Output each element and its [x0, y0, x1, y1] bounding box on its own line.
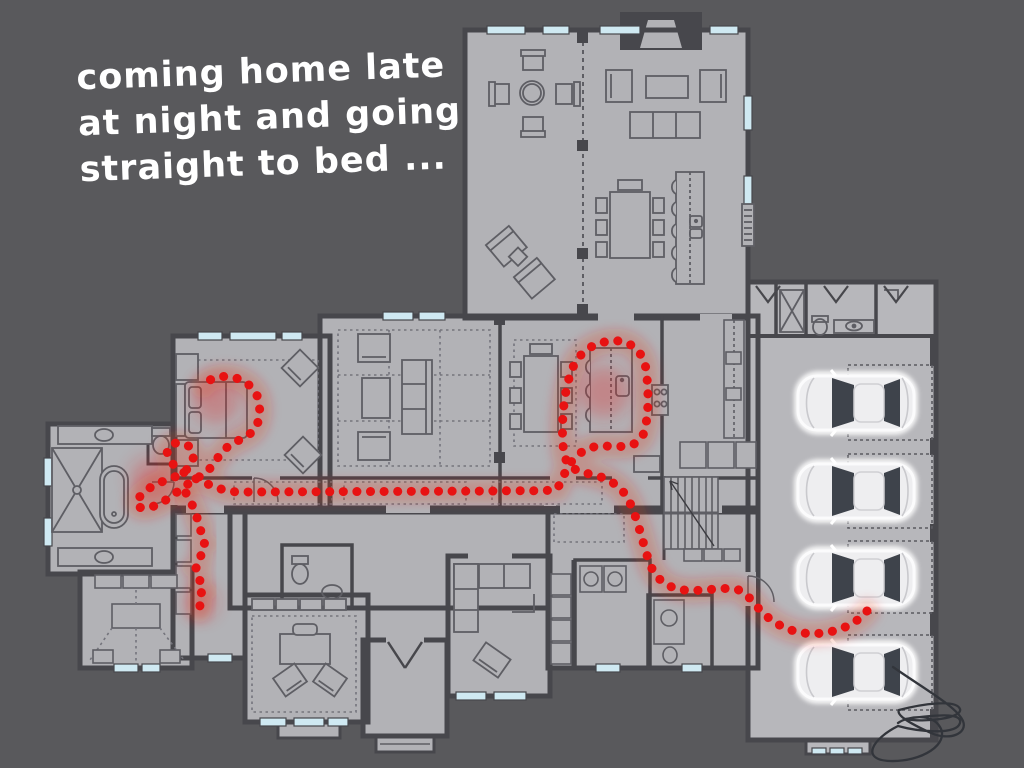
car-top-view: [798, 458, 914, 524]
coffee-table: [362, 378, 390, 418]
utility-cabinet: [654, 600, 684, 644]
car-windshield: [832, 553, 854, 603]
coffee-table: [646, 76, 688, 98]
floor-plan-meme: coming home late at night and going stra…: [0, 0, 1024, 768]
car-roof: [854, 653, 884, 691]
sofa: [630, 112, 700, 138]
closet-island: [112, 604, 160, 628]
sofa: [402, 360, 432, 434]
car-roof: [854, 384, 884, 422]
car-top-view: [798, 639, 914, 705]
desk-chair: [293, 624, 317, 635]
armchair: [606, 70, 632, 102]
car-rear-window: [884, 379, 900, 427]
pantry-counter: [724, 320, 744, 438]
car-rear-window: [884, 648, 900, 696]
car-windshield: [832, 647, 854, 697]
toilet: [292, 556, 308, 564]
car-top-view: [798, 545, 914, 611]
car-roof: [854, 472, 884, 510]
caption-text: coming home late at night and going stra…: [76, 41, 501, 194]
nightstand: [176, 354, 198, 380]
headboard: [176, 384, 185, 436]
car-top-view: [798, 370, 914, 436]
dining-table: [610, 192, 650, 258]
car-windshield: [832, 466, 854, 516]
desk: [280, 634, 330, 664]
car-windshield: [832, 378, 854, 428]
car-rear-window: [884, 467, 900, 515]
car-rear-window: [884, 554, 900, 602]
car-roof: [854, 559, 884, 597]
